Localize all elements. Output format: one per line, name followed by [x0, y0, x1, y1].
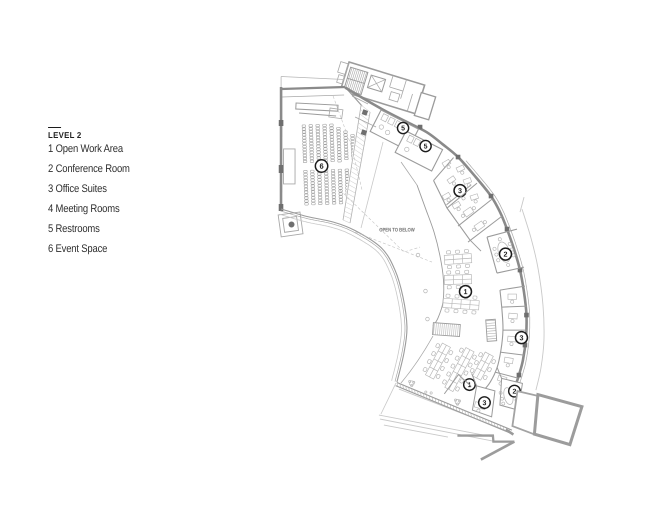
svg-text:3: 3: [458, 186, 462, 195]
svg-text:2: 2: [503, 250, 507, 259]
svg-text:3: 3: [519, 333, 523, 342]
svg-text:6: 6: [319, 162, 323, 171]
svg-text:1: 1: [463, 287, 467, 296]
svg-text:3: 3: [482, 400, 486, 407]
svg-text:OPEN TO BELOW: OPEN TO BELOW: [379, 228, 415, 234]
svg-text:2: 2: [512, 389, 516, 396]
svg-text:5: 5: [424, 143, 428, 150]
svg-text:5: 5: [401, 125, 405, 132]
